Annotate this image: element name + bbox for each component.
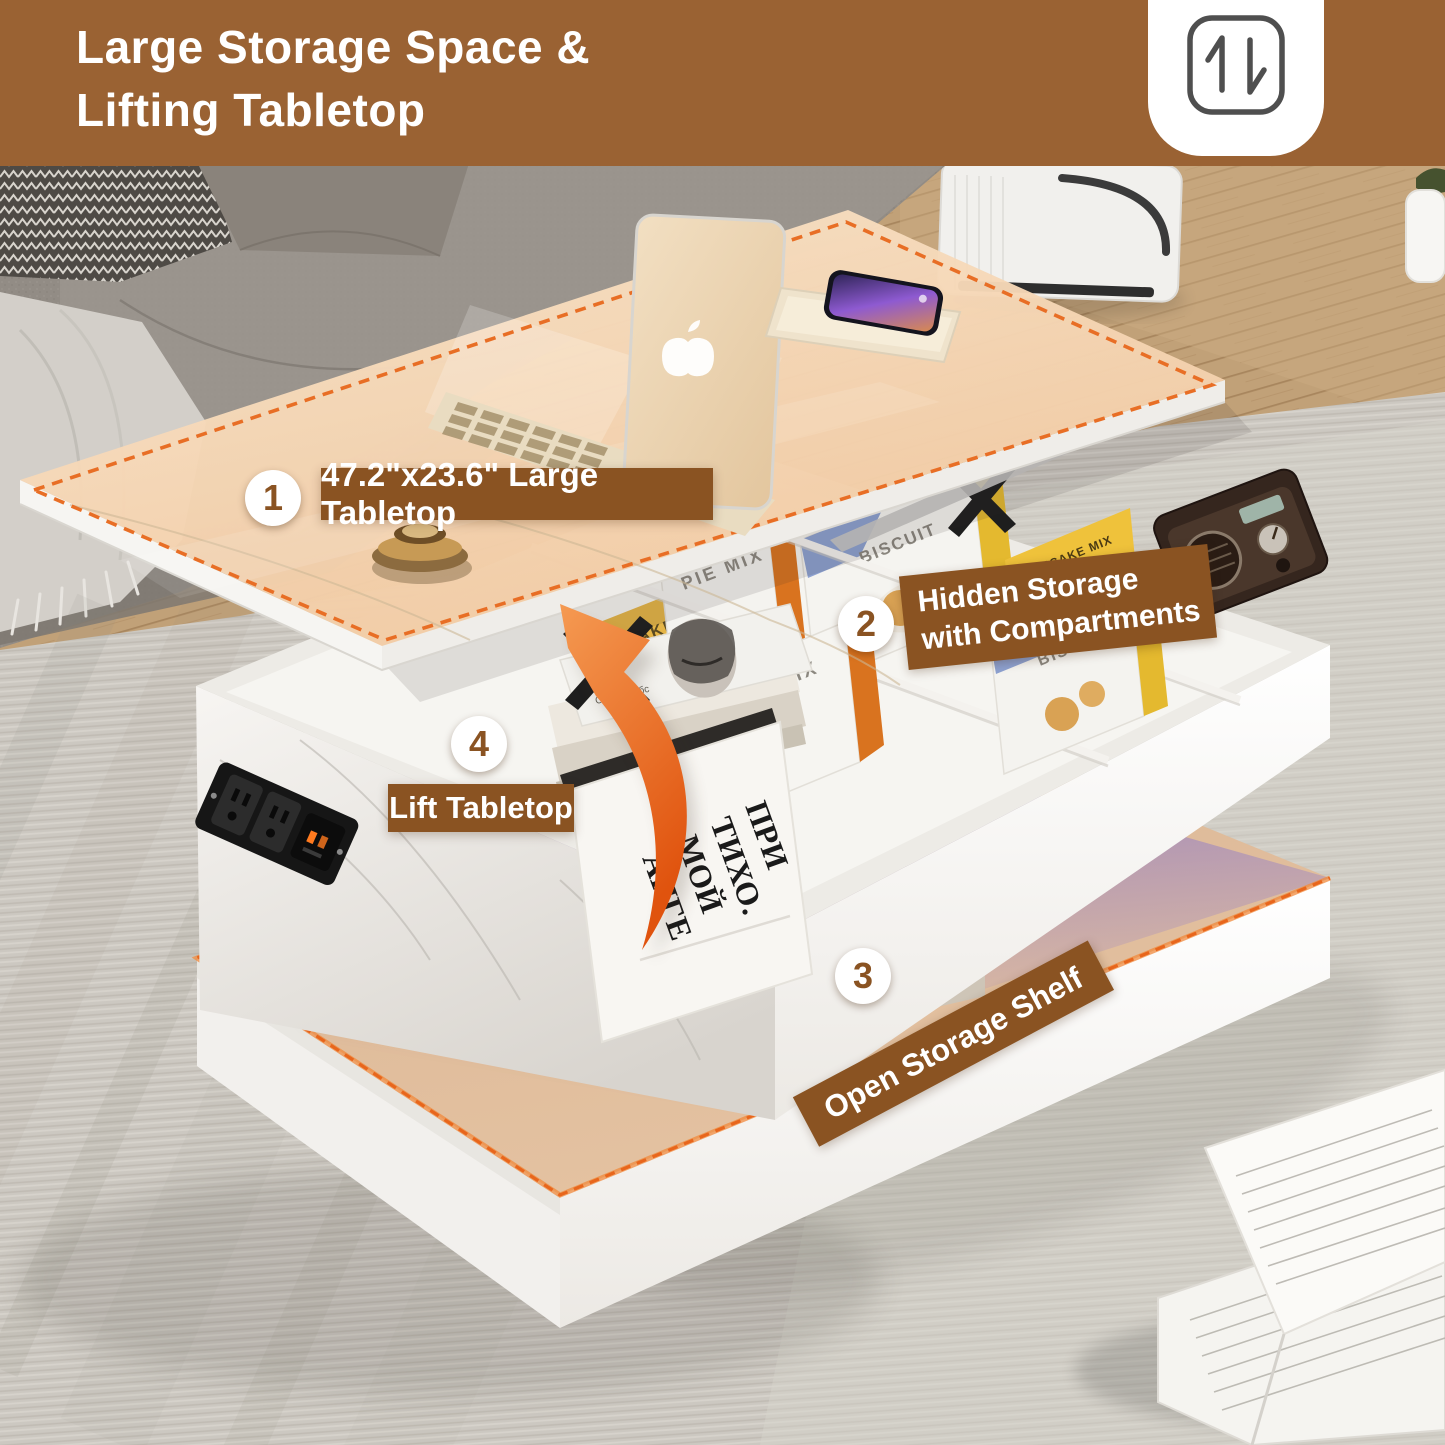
callout-label-tabletop: 47.2"x23.6" Large Tabletop [321,468,713,520]
page-title: Large Storage Space &Lifting Tabletop [76,16,590,143]
product-infographic: Джордан Элленберг КОРОЛИ ОКЕАНА [0,0,1445,1445]
callout-number-2: 2 [838,596,894,652]
callout-number-3: 3 [835,948,891,1004]
scene-illustration: Джордан Элленберг КОРОЛИ ОКЕАНА [0,0,1445,1445]
sofa-pillow-gray [196,160,470,256]
lift-up-down-arrows-icon [1184,12,1288,122]
callout-label-lift: Lift Tabletop [388,784,574,832]
callout-number-4: 4 [451,716,507,772]
header-icon-tab [1148,0,1324,156]
callout-number-1: 1 [245,470,301,526]
